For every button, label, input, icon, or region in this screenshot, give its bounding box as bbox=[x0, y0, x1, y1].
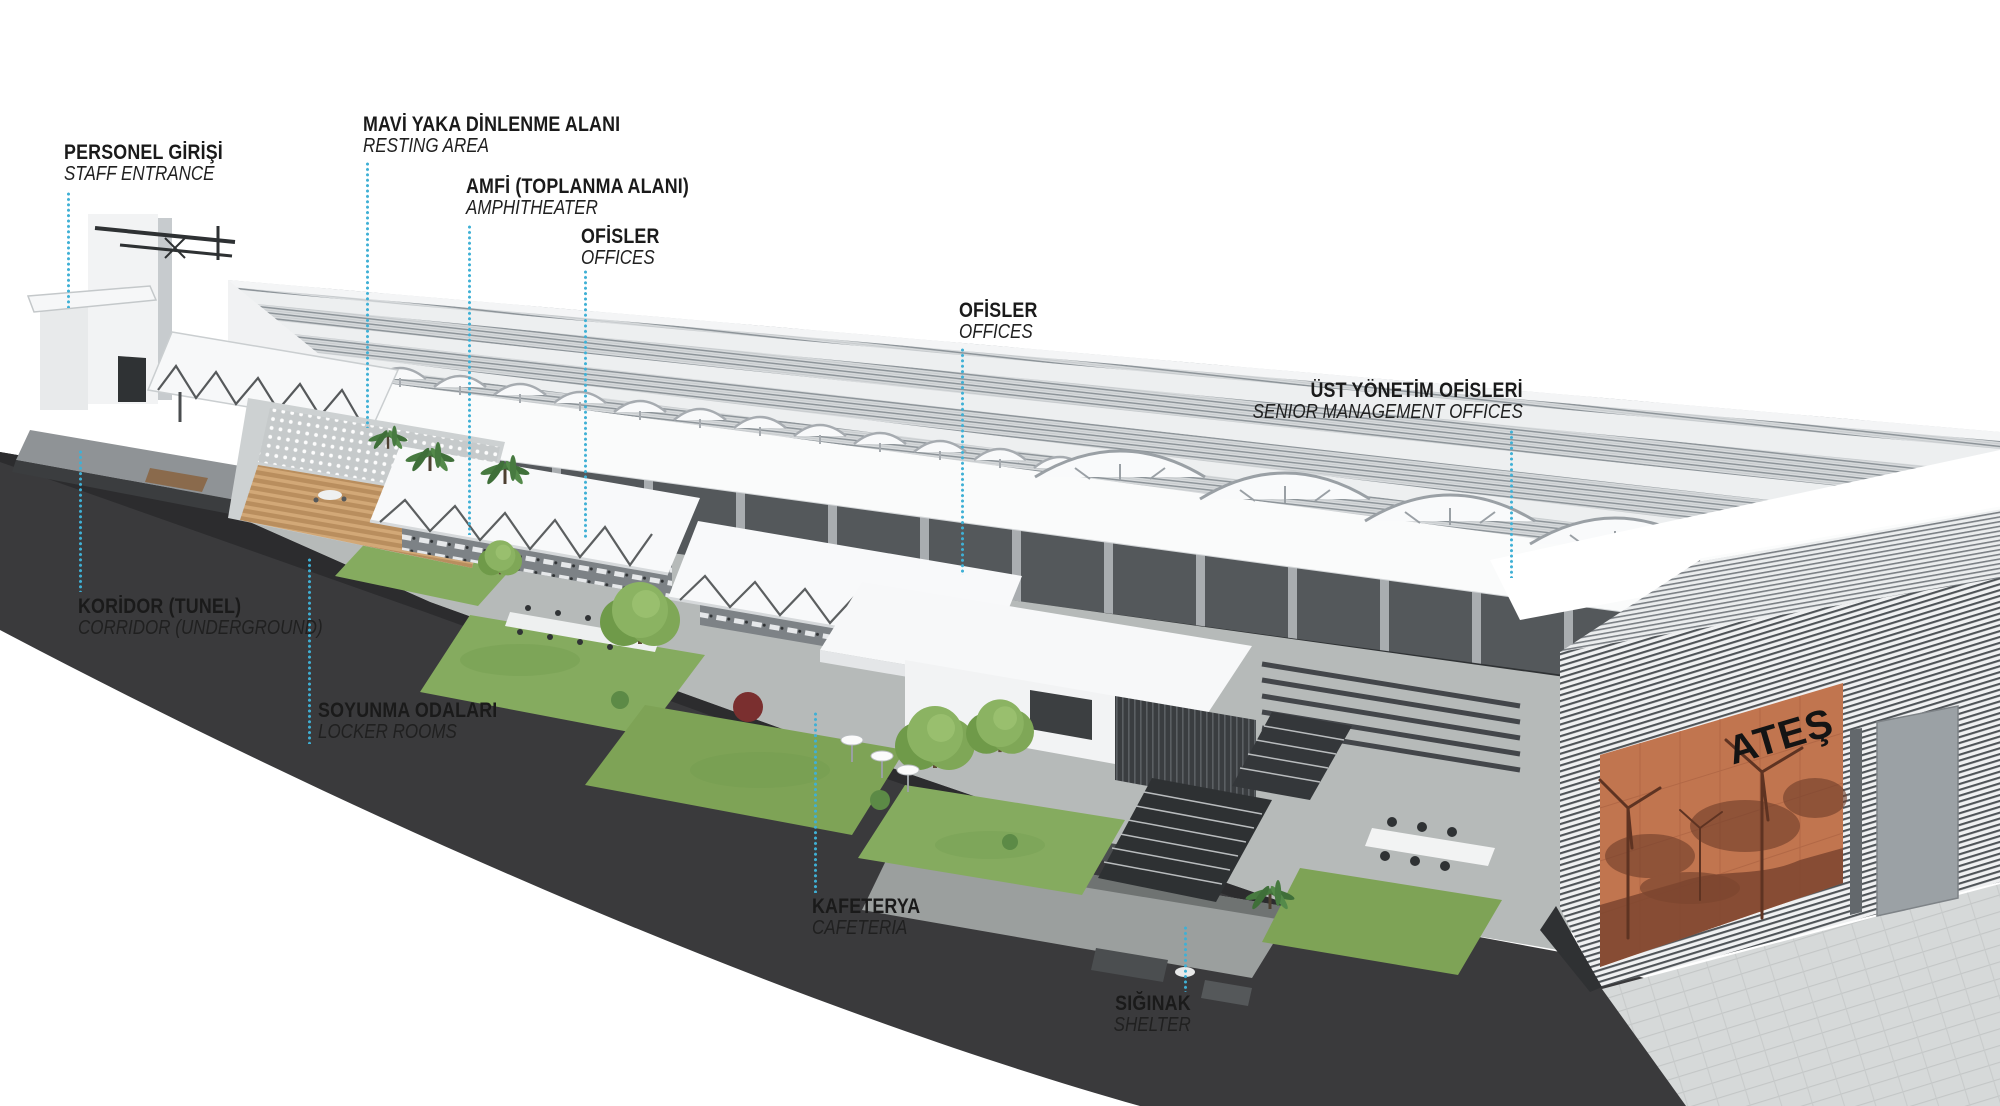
leader-offices-1 bbox=[584, 270, 587, 540]
label-staff-entrance: PERSONEL GİRİŞİ STAFF ENTRANCE bbox=[64, 142, 223, 185]
leader-amphitheater bbox=[468, 225, 471, 535]
label-locker-rooms-tr: SOYUNMA ODALARI bbox=[318, 700, 497, 722]
label-senior-management-en: SENIOR MANAGEMENT OFFICES bbox=[1253, 402, 1523, 423]
label-corridor-tr: KORİDOR (TUNEL) bbox=[78, 596, 323, 618]
label-amphitheater-tr: AMFİ (TOPLANMA ALANI) bbox=[466, 176, 689, 198]
leader-locker-rooms bbox=[308, 558, 311, 744]
label-staff-entrance-en: STAFF ENTRANCE bbox=[64, 164, 223, 185]
leader-shelter bbox=[1184, 926, 1187, 992]
label-locker-rooms: SOYUNMA ODALARI LOCKER ROOMS bbox=[318, 700, 497, 743]
leader-cafeteria bbox=[814, 712, 817, 893]
label-offices-2-tr: OFİSLER bbox=[959, 300, 1038, 322]
label-cafeteria-en: CAFETERIA bbox=[812, 918, 920, 939]
label-staff-entrance-tr: PERSONEL GİRİŞİ bbox=[64, 142, 223, 164]
leader-staff-entrance bbox=[67, 192, 70, 308]
leader-offices-2 bbox=[961, 348, 964, 575]
label-offices-1: OFİSLER OFFICES bbox=[581, 226, 660, 269]
label-cafeteria: KAFETERYA CAFETERIA bbox=[812, 896, 920, 939]
label-offices-1-en: OFFICES bbox=[581, 248, 660, 269]
label-resting-area-tr: MAVİ YAKA DİNLENME ALANI bbox=[363, 114, 620, 136]
architectural-diagram: ATEŞ PERSONEL GİRİŞİ STAFF ENTRANCE MAVİ… bbox=[0, 0, 2000, 1106]
label-amphitheater: AMFİ (TOPLANMA ALANI) AMPHITHEATER bbox=[466, 176, 689, 219]
label-shelter: SIĞINAK SHELTER bbox=[1114, 993, 1191, 1036]
building-illustration: ATEŞ bbox=[0, 0, 2000, 1106]
leader-corridor bbox=[79, 450, 82, 592]
leader-senior-management bbox=[1510, 430, 1513, 578]
label-shelter-tr: SIĞINAK bbox=[1114, 993, 1191, 1015]
label-resting-area-en: RESTING AREA bbox=[363, 136, 620, 157]
red-shrub bbox=[733, 692, 763, 722]
label-offices-1-tr: OFİSLER bbox=[581, 226, 660, 248]
label-amphitheater-en: AMPHITHEATER bbox=[466, 198, 689, 219]
label-corridor: KORİDOR (TUNEL) CORRIDOR (UNDERGROUND) bbox=[78, 596, 323, 639]
label-senior-management-tr: ÜST YÖNETİM OFİSLERİ bbox=[1253, 380, 1523, 402]
entrance-door bbox=[118, 356, 146, 402]
label-shelter-en: SHELTER bbox=[1114, 1015, 1191, 1036]
label-corridor-en: CORRIDOR (UNDERGROUND) bbox=[78, 618, 323, 639]
leader-resting-area bbox=[366, 162, 369, 428]
label-resting-area: MAVİ YAKA DİNLENME ALANI RESTING AREA bbox=[363, 114, 620, 157]
label-senior-management: ÜST YÖNETİM OFİSLERİ SENIOR MANAGEMENT O… bbox=[1253, 380, 1523, 423]
label-offices-2-en: OFFICES bbox=[959, 322, 1038, 343]
label-offices-2: OFİSLER OFFICES bbox=[959, 300, 1038, 343]
label-locker-rooms-en: LOCKER ROOMS bbox=[318, 722, 497, 743]
label-cafeteria-tr: KAFETERYA bbox=[812, 896, 920, 918]
